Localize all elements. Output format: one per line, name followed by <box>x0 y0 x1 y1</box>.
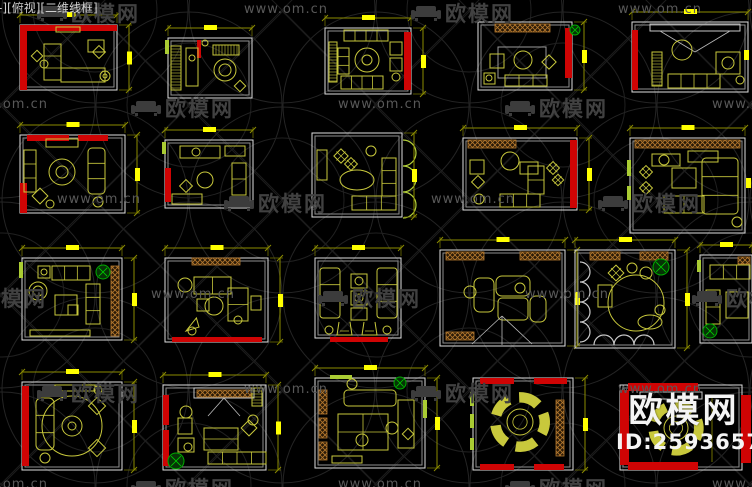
dimension-value <box>352 245 365 250</box>
sofa-outline <box>710 265 750 279</box>
red-wall-segment <box>172 337 262 342</box>
furniture-rect <box>317 150 327 180</box>
furniture-rect <box>351 274 367 288</box>
wall-tick <box>470 414 474 428</box>
furniture-circle <box>33 286 43 296</box>
curved-sofa-segment <box>519 397 538 405</box>
floor-plan[interactable] <box>312 245 404 342</box>
floor-plan[interactable] <box>627 125 751 233</box>
floor-plan[interactable] <box>460 125 592 213</box>
chair-diamond <box>31 50 42 61</box>
curved-sofa-segment <box>542 414 545 434</box>
red-wall-segment <box>534 464 564 470</box>
floor-plan[interactable] <box>312 130 417 220</box>
red-wall-segment <box>22 386 29 466</box>
curved-sofa-segment <box>496 425 507 442</box>
round-table <box>507 409 533 435</box>
furniture-circle <box>188 327 196 335</box>
dimension-line <box>270 255 283 345</box>
furniture-rect <box>598 285 612 307</box>
wall-tick <box>627 160 631 176</box>
dimension-line <box>697 242 752 253</box>
wall-tick <box>165 40 169 54</box>
furniture-rect <box>351 291 367 305</box>
dimension-value <box>497 237 510 242</box>
chair-diamond <box>32 188 48 204</box>
dimension-value <box>66 245 79 250</box>
wall-tick <box>162 142 166 154</box>
dimension-line <box>160 372 269 383</box>
furniture-circle <box>486 75 492 81</box>
chair-diamond <box>88 397 105 414</box>
furniture-circle <box>383 326 391 334</box>
floor-plan[interactable] <box>697 242 752 343</box>
brand-logo-text: 欧模网 <box>616 392 752 430</box>
furniture-circle <box>325 326 333 334</box>
armchair <box>362 322 377 335</box>
furniture-circle <box>515 283 525 293</box>
dimension-value <box>514 125 527 130</box>
dimension-line <box>17 122 128 133</box>
furniture-rect <box>726 292 748 318</box>
viewport-label[interactable]: -][俯视][二维线框] <box>0 0 98 16</box>
dimension-value <box>67 122 80 127</box>
dimension-line <box>162 127 256 138</box>
cad-viewport: 欧模网www.om.cn欧模网www.om.cnwww.om.cn欧模网www.… <box>0 0 752 487</box>
furniture-circle <box>49 159 75 185</box>
dimension-value <box>685 293 690 306</box>
wall-tick <box>470 392 474 406</box>
red-wall-segment <box>628 462 698 470</box>
furniture-circle <box>627 263 637 273</box>
red-wall-segment <box>534 378 567 384</box>
sofa-outline <box>500 194 540 207</box>
wall-tick <box>423 400 427 418</box>
dimension-value <box>619 237 632 242</box>
wall-tick <box>19 262 23 278</box>
red-wall-segment <box>20 25 27 90</box>
furniture-rect <box>186 48 198 86</box>
dimension-value <box>412 169 417 182</box>
dimension-value <box>132 420 137 433</box>
dimension-value <box>209 372 222 377</box>
red-wall-segment <box>632 30 638 90</box>
furniture-rect <box>30 330 90 336</box>
furniture-circle <box>197 172 213 188</box>
furniture-rect <box>390 58 402 71</box>
red-wall-segment <box>570 140 577 208</box>
dimension-value <box>211 245 224 250</box>
furniture-circle <box>355 294 363 302</box>
wall-tick <box>470 438 474 450</box>
red-wall-segment <box>27 135 69 141</box>
brand-watermark: 欧模网 ID:2593657 <box>616 392 752 454</box>
furniture-circle <box>356 434 368 446</box>
wall-tick <box>746 178 751 188</box>
furniture-rect <box>470 160 484 174</box>
curved-sofa-segment <box>516 441 535 446</box>
furniture-rect <box>398 400 414 448</box>
dimension-line <box>677 247 690 351</box>
furniture-circle <box>659 155 669 165</box>
furniture-circle <box>355 48 379 72</box>
dimension-line <box>162 245 271 256</box>
furniture-circle <box>62 416 82 436</box>
furniture-circle <box>362 55 372 65</box>
dimension-value <box>278 294 283 307</box>
dimension-line <box>322 15 414 26</box>
red-wall-segment <box>565 28 572 78</box>
floor-plan[interactable] <box>437 237 580 349</box>
chair-diamond <box>402 428 413 439</box>
furniture-circle <box>189 55 195 61</box>
red-wall-segment <box>480 378 514 384</box>
furniture-rect <box>530 296 546 322</box>
wall-tick <box>330 375 352 379</box>
dimension-line <box>427 375 440 471</box>
furniture-circle <box>205 297 223 315</box>
dimension-value <box>435 417 440 430</box>
dimension-value <box>421 55 426 68</box>
furniture-rect <box>61 68 105 82</box>
furniture-circle <box>192 148 200 156</box>
rug-ellipse <box>340 170 374 190</box>
furniture-rect <box>490 54 504 68</box>
furniture-rect <box>520 162 538 174</box>
red-wall-segment <box>330 337 388 342</box>
dimension-value <box>582 50 587 63</box>
chair-diamond <box>234 80 245 91</box>
detail-line <box>208 398 224 416</box>
dimension-line <box>572 237 678 248</box>
furniture-circle <box>214 59 236 81</box>
dimension-value <box>720 242 733 247</box>
furniture-circle <box>474 194 484 204</box>
dimension-line <box>124 255 137 343</box>
furniture-circle <box>184 443 192 451</box>
striped-cabinet <box>171 46 181 90</box>
dimension-value <box>132 293 137 306</box>
detail-line <box>224 398 240 416</box>
red-wall-segment <box>480 464 514 470</box>
floor-plan[interactable] <box>478 19 587 93</box>
floor-plan[interactable] <box>572 237 690 351</box>
curved-sofa-segment <box>496 400 509 415</box>
floor-plan[interactable] <box>470 375 588 473</box>
sofa-outline <box>86 284 100 324</box>
dimension-line <box>165 25 255 36</box>
sofa-outline <box>338 48 349 74</box>
wall-tick <box>744 50 749 60</box>
dimension-value <box>135 168 140 181</box>
furniture-circle <box>41 269 47 275</box>
furniture-circle <box>732 217 742 227</box>
wall-tick <box>627 186 631 200</box>
red-wall-segment <box>163 395 169 425</box>
floor-plan[interactable] <box>19 369 137 473</box>
red-wall-segment <box>165 168 171 202</box>
dimension-value <box>362 15 375 20</box>
dimension-value <box>203 127 216 132</box>
furniture-rect <box>390 42 402 55</box>
furniture-rect <box>178 418 192 434</box>
brand-id-text: ID:2593657 <box>616 430 752 454</box>
sofa-outline <box>382 158 396 196</box>
furniture-circle <box>392 73 400 81</box>
dimension-value <box>583 418 588 431</box>
furniture-rect <box>88 40 104 52</box>
dimension-value <box>682 125 695 130</box>
furniture-circle <box>514 51 532 69</box>
furniture-rect <box>474 278 494 312</box>
wall-tick <box>697 260 701 272</box>
dimension-line <box>579 135 592 213</box>
dimension-value <box>364 365 377 370</box>
furniture-circle <box>736 76 744 84</box>
furniture-circle <box>42 396 102 456</box>
furniture-circle <box>46 200 54 208</box>
sofa-outline <box>505 75 547 86</box>
red-wall-segment <box>78 135 108 141</box>
floor-plan[interactable] <box>165 25 255 98</box>
furniture-rect <box>55 385 95 391</box>
red-wall-segment <box>628 383 698 391</box>
red-wall-segment <box>404 32 411 90</box>
dimension-value <box>587 168 592 181</box>
dimension-value <box>575 292 580 305</box>
floor-plan[interactable] <box>312 365 440 471</box>
detail-line <box>695 31 730 52</box>
furniture-circle <box>29 282 47 300</box>
sofa-outline <box>702 158 738 214</box>
furniture-circle <box>219 64 231 76</box>
dimension-line <box>575 375 588 473</box>
dimension-value <box>204 25 217 30</box>
dimension-value <box>127 52 132 65</box>
dimension-line <box>127 132 140 216</box>
dimension-value <box>276 422 281 435</box>
dimension-value <box>66 369 79 374</box>
sofa-outline <box>88 148 105 194</box>
furniture-circle <box>40 453 50 463</box>
dimension-line <box>460 125 580 136</box>
dimension-value <box>684 9 697 14</box>
furniture-circle <box>366 146 376 156</box>
furniture-circle <box>234 316 242 324</box>
furniture-circle <box>501 152 519 170</box>
floor-plan[interactable] <box>629 9 751 92</box>
furniture-rect <box>251 296 261 310</box>
dimension-line <box>437 237 568 248</box>
red-wall-segment <box>20 25 117 31</box>
furniture-rect <box>38 266 50 278</box>
furniture-rect <box>716 52 740 74</box>
